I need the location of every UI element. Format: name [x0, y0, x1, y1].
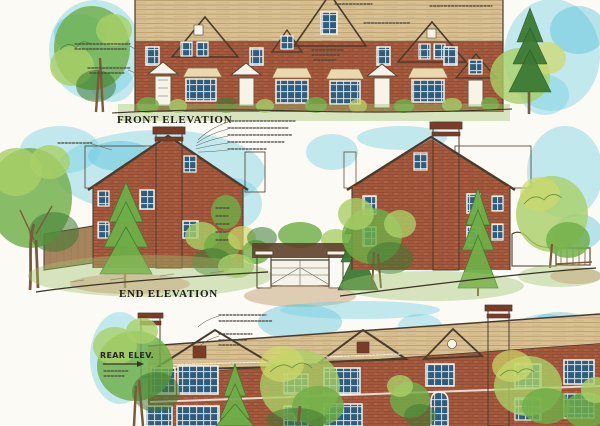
rear-elevation-label: REAR ELEV.	[100, 351, 154, 360]
rendering-canvas: FRONT ELEVATION END ELEVATION REAR ELEV.	[0, 0, 600, 426]
gate-doors	[271, 260, 329, 286]
right-tree	[516, 176, 590, 268]
end-elevation-left-drawing	[0, 126, 272, 297]
rear-elevation-drawing	[90, 301, 600, 426]
front-elevation-label: FRONT ELEVATION	[117, 114, 232, 126]
watercolor-elevation-sheet: FRONT ELEVATION END ELEVATION REAR ELEV.	[0, 0, 600, 426]
front-elevation-drawing	[49, 0, 600, 121]
end-elevation-label: END ELEVATION	[119, 288, 218, 300]
